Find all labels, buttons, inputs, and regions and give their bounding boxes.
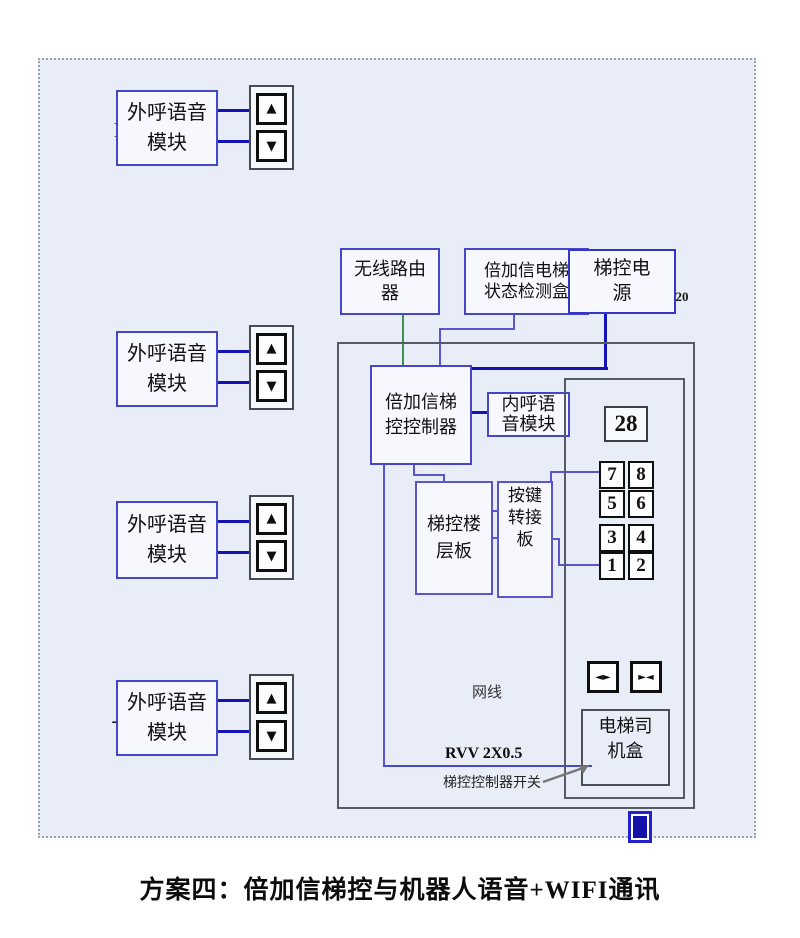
door-open-button: ◄► [587, 661, 619, 693]
up-button: ▲ [256, 682, 287, 714]
outcall-module-box-2: 外呼语音模块 [116, 331, 218, 407]
call-button-panel-m1: ▲ ▼ [249, 674, 294, 760]
down-button: ▼ [256, 370, 287, 402]
down-arrow-icon: ▼ [267, 379, 277, 394]
door-close-button: ►◄ [630, 661, 662, 693]
up-arrow-icon: ▲ [267, 101, 277, 116]
up-arrow-icon: ▲ [267, 691, 277, 706]
inner-call-box: 内呼语音模块 [487, 392, 570, 437]
door-close-icon: ►◄ [638, 672, 653, 683]
down-arrow-icon: ▼ [267, 139, 277, 154]
call-button-panel-n: ▲ ▼ [249, 85, 294, 170]
caption: 方案四：倍加信梯控与机器人语音+WIFI通讯 [0, 870, 800, 906]
down-button: ▼ [256, 540, 287, 572]
controller-box: 倍加信梯控控制器 [370, 365, 472, 465]
up-arrow-icon: ▲ [267, 341, 277, 356]
outcall-module-box-1: 外呼语音模块 [116, 501, 218, 579]
key-button-4: 4 [628, 524, 654, 552]
router-box: 无线路由器 [340, 248, 440, 315]
down-button: ▼ [256, 130, 287, 162]
floor-display: 28 [604, 406, 648, 442]
rvv-label: RVV 2X0.5 [445, 745, 522, 763]
controller-switch-fill [633, 816, 647, 838]
up-arrow-icon: ▲ [267, 511, 277, 526]
outcall-module-box-m1: 外呼语音模块 [116, 680, 218, 756]
key-button-2: 2 [628, 552, 654, 580]
key-button-8: 8 [628, 461, 654, 489]
call-button-panel-1: ▲ ▼ [249, 495, 294, 580]
key-button-6: 6 [628, 490, 654, 518]
key-button-3: 3 [599, 524, 625, 552]
call-button-panel-2: ▲ ▼ [249, 325, 294, 410]
up-button: ▲ [256, 503, 287, 535]
key-button-5: 5 [599, 490, 625, 518]
up-button: ▲ [256, 93, 287, 125]
power-box: 梯控电源 [568, 249, 676, 314]
key-button-1: 1 [599, 552, 625, 580]
key-button-7: 7 [599, 461, 625, 489]
door-open-icon: ◄► [595, 672, 610, 683]
switch-label: 梯控控制器开关 [443, 772, 541, 792]
down-arrow-icon: ▼ [267, 549, 277, 564]
floor-board-box: 梯控楼层板 [415, 481, 493, 595]
up-button: ▲ [256, 333, 287, 365]
controller-switch [628, 811, 652, 843]
down-arrow-icon: ▼ [267, 729, 277, 744]
outcall-module-box-n: 外呼语音模块 [116, 90, 218, 166]
key-adapter-box: 按键转接板 [497, 481, 553, 598]
wire-detector-run [439, 328, 515, 330]
switch-pointer-arrow [537, 755, 597, 790]
net-cable-label: 网线 [472, 681, 502, 702]
down-button: ▼ [256, 720, 287, 752]
diagram-canvas: N楼 外呼语音模块 ▲ ▼ 2楼 外呼语音模块 ▲ ▼ 1楼 外呼语音模块 ▲ … [38, 58, 756, 838]
